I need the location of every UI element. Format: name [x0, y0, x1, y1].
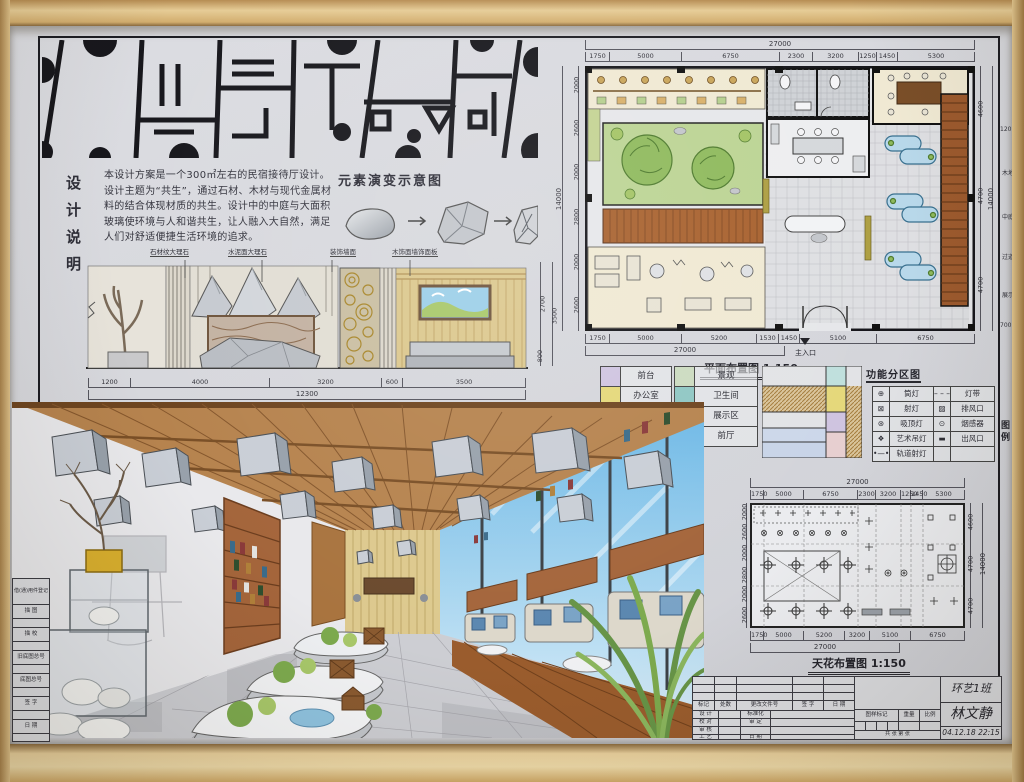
dim: 4000 — [131, 378, 270, 388]
tb-blank — [693, 693, 715, 701]
dim: 5100 — [870, 631, 911, 641]
dim: 1200 — [88, 378, 131, 388]
dim: 5000 — [764, 490, 804, 500]
zone-label: 景观 — [695, 367, 758, 386]
wood-frame-right — [1012, 0, 1024, 782]
dim: 2000 — [572, 77, 580, 94]
side-field: 描 校 — [13, 628, 50, 642]
tb-header: 签 字 — [793, 701, 824, 711]
lounge-area — [588, 247, 765, 328]
entrance-label: 主入口 — [795, 348, 816, 358]
dim: 5100 — [800, 334, 877, 344]
elevation-dim-chain: 1200 4000 3200 600 3500 — [88, 378, 526, 388]
ceiling-caption: 天花布置图 1:150 — [808, 655, 910, 675]
zone-chip-landscape — [675, 367, 695, 386]
dim: 4600 — [976, 101, 984, 118]
design-notes-label: 设 计 说 明 — [66, 172, 81, 274]
wood-frame-bottom — [0, 744, 1024, 782]
tb-blank — [771, 735, 855, 740]
zone-label: 卫生间 — [695, 387, 758, 406]
floorplan-total-top: 27000 — [585, 40, 975, 50]
tb-blank — [888, 722, 899, 731]
green-strip — [588, 109, 600, 161]
elevation-wood-wall — [396, 268, 526, 368]
tb-blank — [855, 677, 941, 710]
label-char: 明 — [66, 253, 81, 274]
tb-blank — [793, 677, 824, 685]
dim: 2600 — [740, 524, 748, 541]
dim: 14000 — [555, 188, 563, 210]
zone-chip-front-desk — [601, 367, 621, 386]
dim: 14000 — [987, 188, 995, 210]
ceiling-dims-top: 1750 5000 6750 2300 3200 1250 1450 5300 — [750, 490, 965, 500]
side-field: 签 字 — [13, 697, 50, 711]
dim: 5300 — [923, 490, 965, 500]
dim-line — [578, 66, 579, 331]
side-blank — [13, 711, 50, 720]
label-air-outlet: 出风口 — [951, 432, 995, 447]
tb-field: 工 艺 — [693, 735, 719, 740]
zoning-mini-diagram — [762, 366, 862, 458]
tb-author: 林文静 — [941, 703, 1002, 727]
label-exhaust-vent: 排风口 — [951, 402, 995, 417]
tb-blank — [719, 719, 741, 727]
tb-blank — [793, 685, 824, 693]
label-spotlight: 射灯 — [890, 402, 934, 417]
side-blank — [13, 665, 50, 674]
tb-blank — [693, 677, 715, 685]
dim: 1450 — [779, 334, 800, 344]
dim: 14000 — [979, 553, 987, 575]
dim: 3200 — [845, 631, 870, 641]
tb-header: 更改文件号 — [737, 701, 793, 711]
legend-side-label: 图例 — [998, 420, 1011, 444]
dim: 1750 — [585, 334, 610, 344]
elevation-slat-strip — [166, 266, 190, 368]
zone-label: 前厅 — [695, 427, 758, 446]
tb-blank — [719, 735, 741, 740]
dim: 2300 — [858, 490, 876, 500]
tb-field: 标准化 — [741, 711, 771, 719]
tb-blank — [771, 727, 855, 735]
empty-cell — [934, 447, 951, 462]
floorplan-dims-top: 1750 5000 6750 2300 3200 1250 1450 5300 — [585, 52, 975, 62]
office — [767, 119, 869, 177]
tb-blank — [899, 722, 920, 731]
tb-field: 校 对 — [693, 719, 719, 727]
zone-row: 景观 — [675, 367, 758, 387]
tb-field: 设 计 — [693, 711, 719, 719]
dim: 3500 — [550, 308, 558, 325]
ceiling-plan — [750, 503, 965, 628]
perspective-rendering — [12, 402, 704, 738]
label-art-chandelier: 艺术吊灯 — [890, 432, 934, 447]
tb-blank — [920, 722, 941, 731]
elevation-gold-panel — [340, 268, 380, 368]
bookshelf-wall — [941, 94, 968, 306]
dim: 2600 — [572, 120, 580, 137]
symbol-art-chandelier: ❖ — [873, 432, 890, 447]
tb-blank — [719, 727, 741, 735]
elevation-slat-gap — [380, 268, 396, 368]
title-logotype — [42, 40, 538, 158]
side-field: 底图总号 — [13, 674, 50, 688]
tb-blank — [793, 693, 824, 701]
dim: 6750 — [877, 334, 975, 344]
dim: 3200 — [270, 378, 382, 388]
elevation-stone-feature — [190, 266, 338, 368]
tb-blank — [877, 722, 888, 731]
dim: 4700 — [976, 277, 984, 294]
reception-desk — [364, 578, 414, 594]
label-char: 设 — [66, 172, 81, 193]
dim: 1750 — [585, 52, 610, 62]
tb-weight-label: 重量 — [899, 710, 920, 722]
zone-label: 展示区 — [695, 407, 758, 426]
label-smoke-detector: 烟感器 — [951, 417, 995, 432]
dim: 2000 — [572, 254, 580, 271]
tb-field: 审 核 — [693, 727, 719, 735]
label-ceiling-lamp: 吸顶灯 — [890, 417, 934, 432]
tb-blank — [737, 685, 793, 693]
bookshelf — [224, 498, 280, 654]
dim: 2000 — [740, 586, 748, 603]
dim: 2000 — [740, 504, 748, 521]
main-title-block: 标记 处数 更改文件号 签 字 日 期 设 计 标准化 校 对 审 定 审 核 … — [692, 676, 1002, 740]
symbol-exhaust-vent: ▨ — [934, 402, 951, 417]
tb-blank — [715, 693, 737, 701]
dim: 6750 — [682, 52, 780, 62]
dim: 5200 — [804, 631, 845, 641]
dim: 4700 — [966, 556, 974, 573]
framed-design-board: 设 计 说 明 本设计方案是一个300㎡左右的民宿接待厅设计。设计主题为“共生”… — [0, 0, 1024, 782]
dim: 2800 — [740, 567, 748, 584]
dim: 3200 — [876, 490, 901, 500]
bathrooms — [767, 69, 869, 117]
wood-frame-top — [0, 0, 1024, 26]
dim: 5200 — [682, 334, 757, 344]
dim: 1450 — [877, 52, 898, 62]
tb-date: 04.12.18 22:15 — [941, 727, 1002, 740]
side-field: 描 图 — [13, 605, 50, 619]
dim: 3200 — [813, 52, 859, 62]
dim: 1530 — [757, 334, 779, 344]
zoning-title: 功能分区图 — [866, 366, 921, 383]
tb-field: 审 定 — [741, 719, 771, 727]
dim: 5000 — [610, 52, 682, 62]
tb-sheets: 共 张 第 张 — [855, 731, 941, 740]
dim: 2600 — [740, 607, 748, 624]
symbol-light-strip: – – – — [934, 387, 951, 402]
label-downlight: 筒灯 — [890, 387, 934, 402]
tb-blank — [693, 685, 715, 693]
tb-blank — [771, 711, 855, 719]
evolution-title: 元素演变示意图 — [338, 170, 443, 189]
side-blank — [13, 688, 50, 697]
side-field: 旧底图总号 — [13, 651, 50, 665]
ceiling-total-top: 27000 — [750, 478, 965, 488]
tb-blank — [771, 719, 855, 727]
dim: 4600 — [966, 514, 974, 531]
entrance-arrow — [800, 338, 810, 345]
wood-deck — [603, 209, 763, 243]
label-char: 计 — [66, 199, 81, 220]
ceiling-total-bottom: 27000 — [750, 643, 900, 653]
empty-cell — [951, 447, 995, 462]
floorplan-total-bottom: 27000 — [585, 346, 785, 356]
dim: 600 — [382, 378, 403, 388]
side-title-block: 借(通)用件登记 描 图 描 校 旧底图总号 底图总号 签 字 日 期 — [12, 578, 50, 742]
side-field: 日 期 — [13, 720, 50, 734]
wood-panel — [312, 522, 345, 626]
side-blank — [13, 619, 50, 628]
symbol-spotlight: ⊠ — [873, 402, 890, 417]
label-track-light: 轨道射灯 — [890, 447, 934, 462]
dim: 2700 — [538, 296, 546, 313]
courtyard — [603, 123, 763, 205]
tb-blank — [715, 677, 737, 685]
zone-row: 前台 — [601, 367, 672, 387]
side-blank — [13, 734, 50, 742]
elevation-drawing — [80, 256, 532, 378]
tb-field: 日 期 — [741, 735, 771, 740]
floorplan-dims-bottom: 1750 5000 5200 1530 1450 5100 6750 — [585, 334, 975, 344]
side-blank — [13, 642, 50, 651]
dim: 1750 — [750, 490, 764, 500]
wood-frame-left — [0, 0, 10, 782]
tb-blank — [715, 685, 737, 693]
dim: 2600 — [572, 297, 580, 314]
dim: 1750 — [750, 631, 764, 641]
label-light-strip: 灯带 — [951, 387, 995, 402]
dim: 2000 — [572, 164, 580, 181]
dim: 5000 — [764, 631, 804, 641]
tb-class-name: 环艺1班 — [941, 677, 1002, 703]
side-field: 借(通)用件登记 — [13, 579, 50, 605]
tb-blank — [737, 677, 793, 685]
zone-label: 前台 — [621, 367, 672, 386]
dim: 2000 — [740, 545, 748, 562]
dim: 1450 — [911, 490, 923, 500]
dim: 3500 — [403, 378, 526, 388]
symbol-smoke-detector: ⊙ — [934, 417, 951, 432]
tb-blank — [737, 693, 793, 701]
dim: 5000 — [610, 334, 682, 344]
tb-blank — [824, 685, 855, 693]
tb-blank — [719, 711, 741, 719]
symbol-ceiling-lamp: ⊛ — [873, 417, 890, 432]
symbol-downlight: ⊕ — [873, 387, 890, 402]
symbol-air-outlet: ▬ — [934, 432, 951, 447]
design-notes-text: 本设计方案是一个300㎡左右的民宿接待厅设计。设计主题为“共生”，通过石材、木材… — [104, 168, 338, 246]
dim: 5300 — [898, 52, 975, 62]
tb-header: 日 期 — [824, 701, 855, 711]
tb-scale-label: 比例 — [920, 710, 941, 722]
lighting-legend: ⊕ 筒灯 – – – 灯带 ⊠ 射灯 ▨ 排风口 ⊛ 吸顶灯 ⊙ 烟感器 ❖ 艺… — [872, 386, 995, 462]
dim: 1250 — [859, 52, 877, 62]
dim: 800 — [536, 350, 544, 362]
evolution-sketch — [338, 192, 538, 254]
dim: 4700 — [966, 598, 974, 615]
tb-blank — [741, 727, 771, 735]
label-char: 说 — [66, 226, 81, 247]
elevation-dim-total: 12300 — [88, 390, 526, 400]
tb-header: 标记 — [693, 701, 715, 711]
dim: 2800 — [572, 209, 580, 226]
dim: 4700 — [976, 188, 984, 205]
dim: 6750 — [911, 631, 965, 641]
tb-header: 处数 — [715, 701, 737, 711]
tb-blank — [855, 722, 866, 731]
tb-mark-label: 图样标记 — [855, 710, 899, 722]
ceiling-dims-bottom: 1750 5000 5200 3200 5100 6750 — [750, 631, 965, 641]
symbol-track-light: •—• — [873, 447, 890, 462]
dim: 6750 — [804, 490, 858, 500]
tb-blank — [866, 722, 877, 731]
tb-blank — [824, 677, 855, 685]
floor-plan — [585, 66, 975, 331]
bar-area — [588, 69, 765, 109]
dim: 1250 — [901, 490, 911, 500]
tb-blank — [824, 693, 855, 701]
dim: 2300 — [780, 52, 813, 62]
